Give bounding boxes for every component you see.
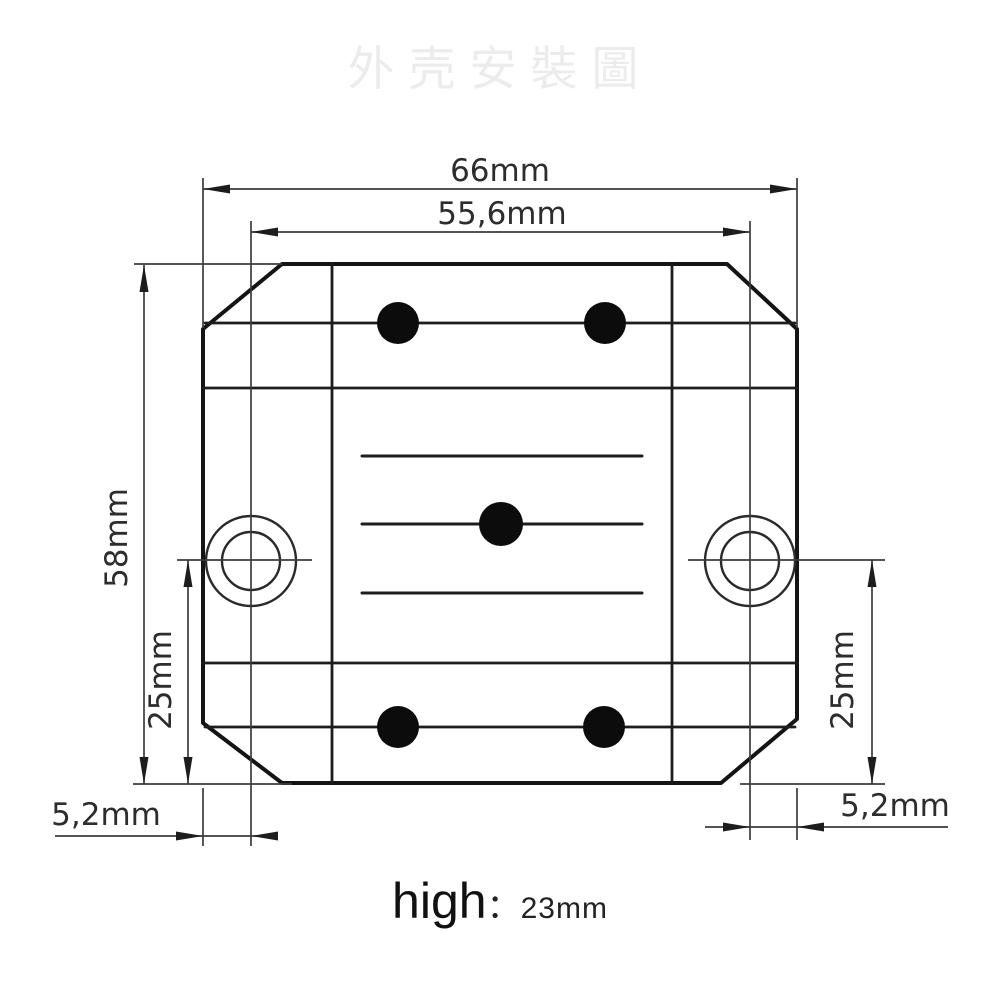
dimension-5-2mm-left: 5,2mm (51, 797, 278, 841)
technical-drawing: 66mm 55,6mm 58mm 25mm 25mm (0, 0, 1000, 1000)
height-caption: high：23mm (0, 872, 1000, 930)
arrowhead-55-6mm-right (723, 228, 750, 237)
screw-center (479, 502, 523, 546)
dimension-66mm: 66mm (203, 153, 797, 194)
arrowhead-58mm-top (140, 265, 149, 292)
arrowhead-25mm-left-bottom (184, 757, 193, 784)
diagram-page: 外壳安裝圖 (0, 0, 1000, 1000)
dim-58mm-label: 58mm (99, 488, 135, 588)
arrowhead-58mm-bottom (140, 757, 149, 784)
dimension-55-6mm: 55,6mm (251, 196, 750, 237)
arrowhead-25mm-right-bottom (868, 757, 877, 784)
height-separator: ： (487, 887, 521, 927)
dim-66mm-label: 66mm (450, 153, 550, 189)
arrowhead-5-2mm-left-a (176, 832, 203, 841)
dim-5-2mm-right-label: 5,2mm (840, 788, 950, 824)
arrowhead-5-2mm-left-b (251, 832, 278, 841)
dimension-25mm-left: 25mm (143, 560, 193, 784)
arrowhead-25mm-left-top (184, 560, 193, 587)
dimension-25mm-right: 25mm (825, 560, 877, 784)
enclosure-body (203, 264, 797, 783)
dimension-5-2mm-right: 5,2mm (705, 788, 950, 832)
height-value: 23mm (521, 892, 608, 925)
arrowhead-66mm-right (770, 185, 797, 194)
arrowhead-25mm-right-top (868, 560, 877, 587)
dim-25mm-left-label: 25mm (143, 630, 179, 730)
dim-55-6mm-label: 55,6mm (437, 196, 566, 232)
height-label: high (392, 873, 487, 929)
arrowhead-66mm-left (203, 185, 230, 194)
arrowhead-5-2mm-right-a (723, 823, 750, 832)
screw-bottom-left (377, 706, 419, 748)
arrowhead-5-2mm-right-b (797, 823, 824, 832)
dimension-58mm: 58mm (99, 265, 149, 784)
dim-5-2mm-left-label: 5,2mm (51, 797, 161, 833)
screw-top-right (584, 302, 626, 344)
screw-top-left (377, 302, 419, 344)
screw-bottom-right (583, 706, 625, 748)
arrowhead-55-6mm-left (251, 228, 278, 237)
dim-25mm-right-label: 25mm (825, 630, 861, 730)
